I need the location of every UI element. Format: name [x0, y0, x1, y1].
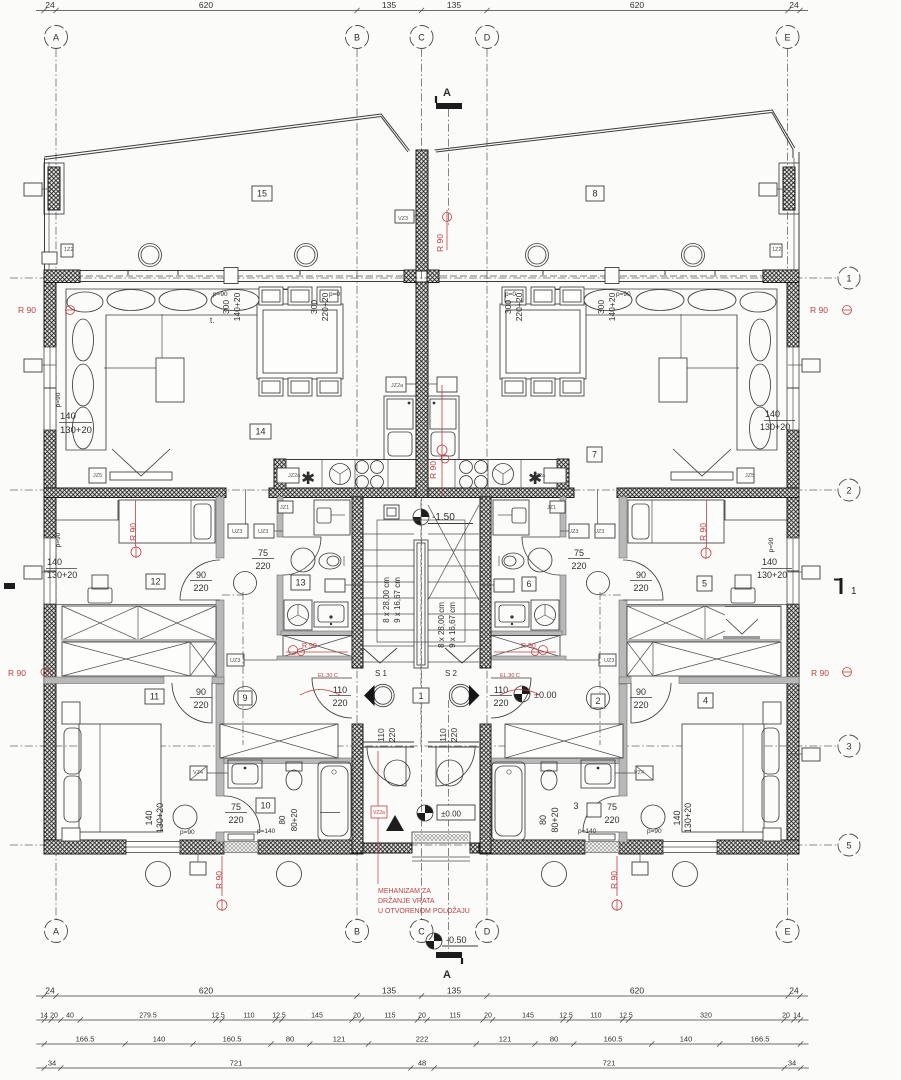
svg-text:1: 1 [418, 691, 423, 701]
svg-text:p=90: p=90 [180, 829, 195, 836]
svg-text:R 90: R 90 [609, 871, 619, 889]
svg-text:300: 300 [596, 300, 606, 314]
svg-text:222: 222 [416, 1035, 429, 1044]
svg-text:13: 13 [295, 578, 305, 588]
svg-text:15: 15 [257, 189, 267, 199]
svg-text:E: E [784, 33, 790, 43]
svg-text:8 x 28,00 cm: 8 x 28,00 cm [437, 602, 446, 648]
svg-text:220: 220 [193, 700, 208, 710]
svg-text:VZ3: VZ3 [398, 216, 408, 222]
svg-text:24: 24 [789, 0, 799, 10]
svg-text:UZ3: UZ3 [230, 658, 240, 664]
svg-text:166.5: 166.5 [76, 1035, 95, 1044]
svg-text:p=0: p=0 [329, 291, 340, 298]
svg-text:14: 14 [793, 1013, 801, 1020]
svg-text:130+20: 130+20 [757, 570, 787, 580]
svg-text:14: 14 [40, 1013, 48, 1020]
svg-text:1: 1 [846, 274, 851, 284]
svg-text:3: 3 [573, 801, 578, 811]
svg-text:A: A [53, 927, 59, 937]
svg-text:130+20: 130+20 [60, 425, 92, 436]
svg-text:75: 75 [231, 802, 241, 812]
svg-text:9: 9 [242, 693, 247, 703]
svg-text:EL.30 C: EL.30 C [318, 673, 338, 679]
svg-text:20: 20 [418, 1013, 426, 1020]
svg-text:✱: ✱ [301, 469, 315, 488]
svg-text:S 1: S 1 [375, 669, 388, 678]
svg-text:220: 220 [633, 700, 648, 710]
svg-text:p=90: p=90 [768, 537, 775, 552]
svg-text:220: 220 [571, 561, 586, 571]
svg-text:JZ1: JZ1 [547, 505, 556, 511]
svg-text:166.5: 166.5 [751, 1035, 770, 1044]
svg-text:40: 40 [66, 1013, 74, 1020]
svg-text:VZ4: VZ4 [634, 770, 644, 776]
svg-text:R 90: R 90 [18, 305, 36, 315]
svg-text:2: 2 [595, 696, 600, 706]
svg-text:300: 300 [503, 300, 513, 314]
svg-text:80: 80 [538, 815, 548, 825]
svg-text:135: 135 [382, 986, 396, 996]
svg-text:140: 140 [680, 1035, 693, 1044]
svg-text:80: 80 [550, 1035, 558, 1044]
svg-text:1Z2: 1Z2 [772, 247, 781, 253]
svg-text:5: 5 [846, 841, 851, 851]
svg-text:p=90: p=90 [213, 291, 228, 298]
svg-text:JZ5: JZ5 [93, 473, 102, 479]
svg-text:UZ3: UZ3 [568, 529, 578, 535]
svg-text:EL.30 C: EL.30 C [500, 673, 520, 679]
svg-text:135: 135 [447, 986, 461, 996]
svg-text:721: 721 [230, 1059, 243, 1068]
svg-text:JZ5: JZ5 [745, 473, 754, 479]
svg-text:20: 20 [782, 1013, 790, 1020]
svg-text:DRŽANJE VRATA: DRŽANJE VRATA [378, 896, 435, 905]
svg-text:VZ4: VZ4 [193, 770, 203, 776]
svg-text:-0.50: -0.50 [446, 935, 467, 945]
svg-text:12.5: 12.5 [211, 1013, 225, 1020]
svg-text:110: 110 [243, 1013, 254, 1020]
svg-text:R 90: R 90 [214, 871, 224, 889]
svg-text:JZ1: JZ1 [280, 505, 289, 511]
svg-text:14: 14 [255, 427, 265, 437]
svg-text:140: 140 [153, 1035, 166, 1044]
svg-text:10: 10 [260, 801, 270, 811]
svg-text:A: A [443, 87, 451, 99]
svg-text:135: 135 [447, 0, 461, 10]
svg-text:2: 2 [846, 486, 851, 496]
svg-text:80: 80 [278, 815, 287, 824]
svg-text:12.5: 12.5 [619, 1013, 633, 1020]
svg-text:75: 75 [607, 802, 617, 812]
svg-text:220: 220 [493, 698, 508, 708]
svg-text:721: 721 [603, 1059, 616, 1068]
svg-text:p=90: p=90 [55, 392, 62, 407]
svg-text:UZ3: UZ3 [232, 529, 242, 535]
svg-text:D: D [484, 33, 491, 43]
svg-text:A: A [443, 969, 451, 981]
svg-text:145: 145 [522, 1013, 534, 1020]
svg-text:220: 220 [255, 561, 270, 571]
svg-text:20: 20 [353, 1013, 361, 1020]
svg-text:80+20: 80+20 [290, 808, 299, 831]
svg-text:24: 24 [789, 986, 799, 996]
svg-text:90: 90 [636, 687, 646, 697]
svg-text:12.5: 12.5 [272, 1013, 286, 1020]
svg-text:110: 110 [376, 728, 386, 742]
svg-text:A: A [53, 33, 59, 43]
svg-text:R 90: R 90 [810, 305, 828, 315]
svg-text:UZ3: UZ3 [258, 529, 268, 535]
svg-text:VZ2a: VZ2a [373, 810, 385, 816]
svg-text:R 90: R 90 [811, 668, 829, 678]
svg-text:620: 620 [630, 0, 644, 10]
svg-text:MEHANIZAM ZA: MEHANIZAM ZA [378, 888, 431, 895]
svg-text:110: 110 [590, 1013, 601, 1020]
svg-text:140: 140 [672, 810, 682, 825]
svg-text:U OTVORENOM POLOŽAJU: U OTVORENOM POLOŽAJU [378, 906, 470, 915]
svg-text:80: 80 [286, 1035, 294, 1044]
svg-text:110: 110 [494, 685, 508, 695]
svg-text:160.5: 160.5 [604, 1035, 623, 1044]
svg-text:220: 220 [332, 698, 347, 708]
svg-text:p=90: p=90 [616, 291, 631, 298]
svg-text:11: 11 [150, 692, 159, 702]
svg-text:t.: t. [210, 316, 214, 325]
svg-text:-1.50: -1.50 [432, 512, 455, 523]
svg-text:p=140: p=140 [257, 828, 276, 835]
svg-text:20: 20 [484, 1013, 492, 1020]
svg-text:135: 135 [382, 0, 396, 10]
svg-text:121: 121 [333, 1035, 346, 1044]
svg-text:320: 320 [700, 1013, 712, 1020]
svg-text:121: 121 [499, 1035, 512, 1044]
svg-text:4: 4 [703, 696, 708, 706]
svg-text:9 x 16,67 cm: 9 x 16,67 cm [448, 602, 457, 648]
svg-text:8 x 28,00 cm: 8 x 28,00 cm [382, 577, 391, 623]
svg-text:JZ2a: JZ2a [288, 473, 301, 479]
svg-text:90: 90 [636, 570, 646, 580]
svg-text:R 90: R 90 [302, 643, 317, 650]
svg-text:75: 75 [574, 548, 584, 558]
svg-text:130+20: 130+20 [760, 422, 790, 432]
svg-text:140: 140 [765, 409, 780, 419]
svg-text:24: 24 [45, 986, 55, 996]
svg-text:48: 48 [418, 1059, 426, 1068]
svg-text:620: 620 [199, 986, 213, 996]
svg-text:90: 90 [196, 687, 206, 697]
svg-text:115: 115 [449, 1013, 460, 1020]
svg-text:R 90: R 90 [8, 668, 26, 678]
svg-text:145: 145 [311, 1013, 323, 1020]
svg-text:8: 8 [592, 189, 597, 199]
svg-text:300: 300 [221, 300, 231, 314]
svg-text:24: 24 [45, 0, 55, 10]
svg-text:34: 34 [788, 1059, 796, 1068]
svg-text:220: 220 [193, 583, 208, 593]
svg-text:R 90: R 90 [428, 461, 438, 479]
svg-text:9 x 16,67 cm: 9 x 16,67 cm [393, 577, 402, 623]
svg-text:±0.00: ±0.00 [534, 690, 556, 700]
svg-text:12: 12 [150, 577, 160, 587]
svg-text:1: 1 [851, 586, 857, 597]
svg-text:220: 220 [228, 815, 243, 825]
svg-text:220: 220 [449, 728, 459, 742]
svg-text:R 90: R 90 [128, 523, 138, 541]
svg-text:110: 110 [438, 728, 448, 742]
svg-text:130+20: 130+20 [155, 803, 165, 833]
svg-text:1Z2: 1Z2 [64, 247, 73, 253]
svg-text:34: 34 [48, 1059, 56, 1068]
svg-text:✱: ✱ [528, 469, 542, 488]
svg-text:300: 300 [309, 300, 319, 314]
svg-text:B: B [354, 33, 360, 43]
svg-text:p=0: p=0 [505, 291, 516, 298]
svg-text:C: C [418, 927, 425, 937]
svg-text:p=140: p=140 [578, 828, 597, 835]
svg-text:20: 20 [50, 1013, 58, 1020]
svg-text:±0.00: ±0.00 [441, 810, 462, 819]
svg-text:220: 220 [387, 728, 397, 742]
svg-text:E: E [784, 927, 790, 937]
svg-text:R 90: R 90 [435, 234, 445, 252]
svg-text:220: 220 [633, 583, 648, 593]
svg-text:C: C [418, 33, 425, 43]
svg-text:B: B [354, 927, 360, 937]
svg-text:S 2: S 2 [445, 669, 458, 678]
svg-text:130+20: 130+20 [683, 803, 693, 833]
svg-text:140: 140 [60, 411, 76, 422]
svg-text:620: 620 [199, 0, 213, 10]
svg-text:3: 3 [846, 742, 851, 752]
svg-text:140: 140 [762, 557, 777, 567]
svg-text:130+20: 130+20 [47, 570, 77, 580]
svg-text:140: 140 [144, 810, 154, 825]
svg-text:p=90: p=90 [55, 532, 62, 547]
svg-text:6: 6 [526, 579, 531, 589]
svg-text:80+20: 80+20 [550, 807, 560, 832]
svg-text:110: 110 [333, 685, 347, 695]
svg-text:D: D [484, 927, 491, 937]
svg-text:140: 140 [47, 557, 62, 567]
svg-text:279.5: 279.5 [139, 1013, 157, 1020]
svg-text:75: 75 [258, 548, 268, 558]
svg-text:220: 220 [604, 815, 619, 825]
svg-text:UZ3: UZ3 [604, 658, 614, 664]
svg-text:160.5: 160.5 [223, 1035, 242, 1044]
svg-text:115: 115 [384, 1013, 395, 1020]
svg-text:JZ2a: JZ2a [391, 383, 404, 389]
svg-text:620: 620 [630, 986, 644, 996]
svg-text:7: 7 [592, 450, 597, 460]
svg-text:5: 5 [702, 579, 707, 589]
svg-text:12.5: 12.5 [559, 1013, 573, 1020]
svg-text:90: 90 [196, 570, 206, 580]
svg-text:UZ3: UZ3 [594, 529, 604, 535]
svg-text:140+20: 140+20 [232, 292, 242, 321]
